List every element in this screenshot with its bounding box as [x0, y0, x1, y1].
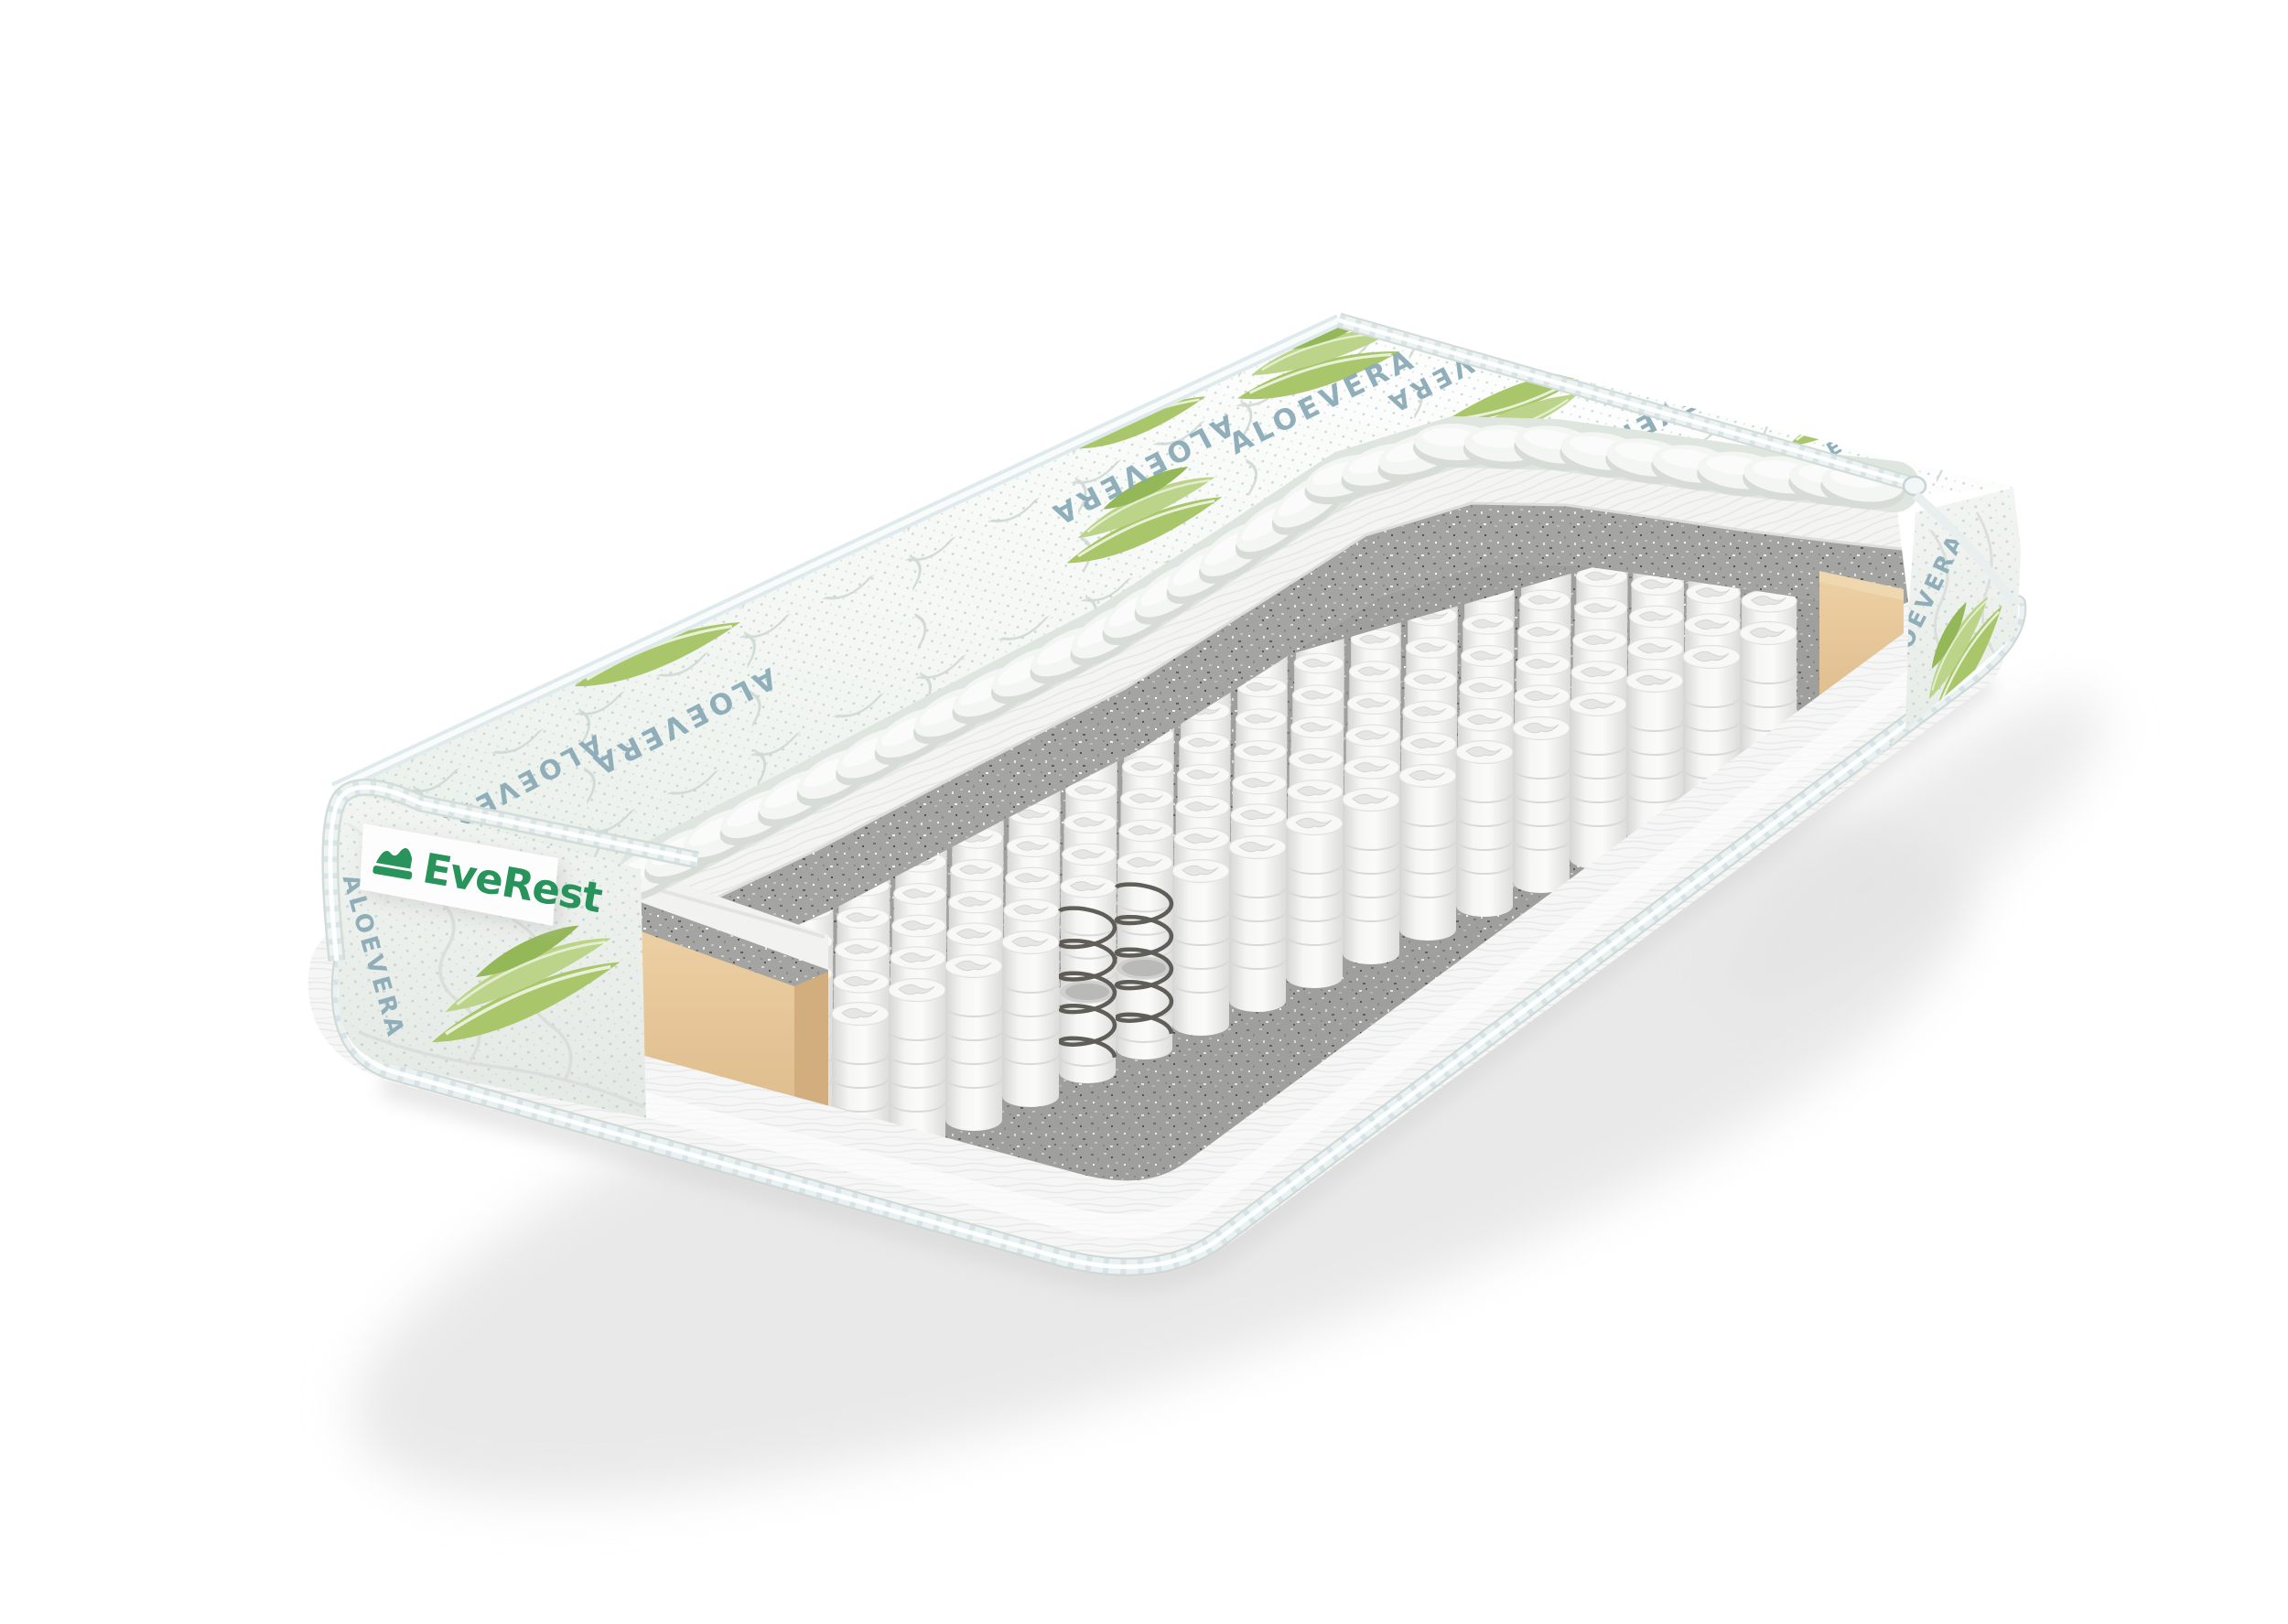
- open-spring-pocket: [1059, 981, 1116, 1084]
- pocket-spring: [1172, 860, 1229, 1037]
- pocket-spring: [1286, 812, 1343, 989]
- open-spring-pocket: [1116, 957, 1172, 1060]
- pocket-spring: [1570, 694, 1626, 870]
- pocket-spring: [1513, 717, 1570, 894]
- product-image-stage: ALOEVERAALOEVERAALOEVERAALOEVERAALOEVERA…: [0, 0, 2288, 1624]
- pocket-spring: [1229, 836, 1286, 1013]
- pocket-spring: [1343, 789, 1399, 965]
- piping-cut-end: [1904, 477, 1926, 495]
- mattress-cutaway-illustration: ALOEVERAALOEVERAALOEVERAALOEVERAALOEVERA…: [0, 0, 2288, 1624]
- pocket-spring: [1399, 765, 1456, 941]
- pocket-spring: [1002, 931, 1059, 1108]
- pocket-spring: [945, 955, 1002, 1132]
- pocket-spring: [1456, 741, 1513, 918]
